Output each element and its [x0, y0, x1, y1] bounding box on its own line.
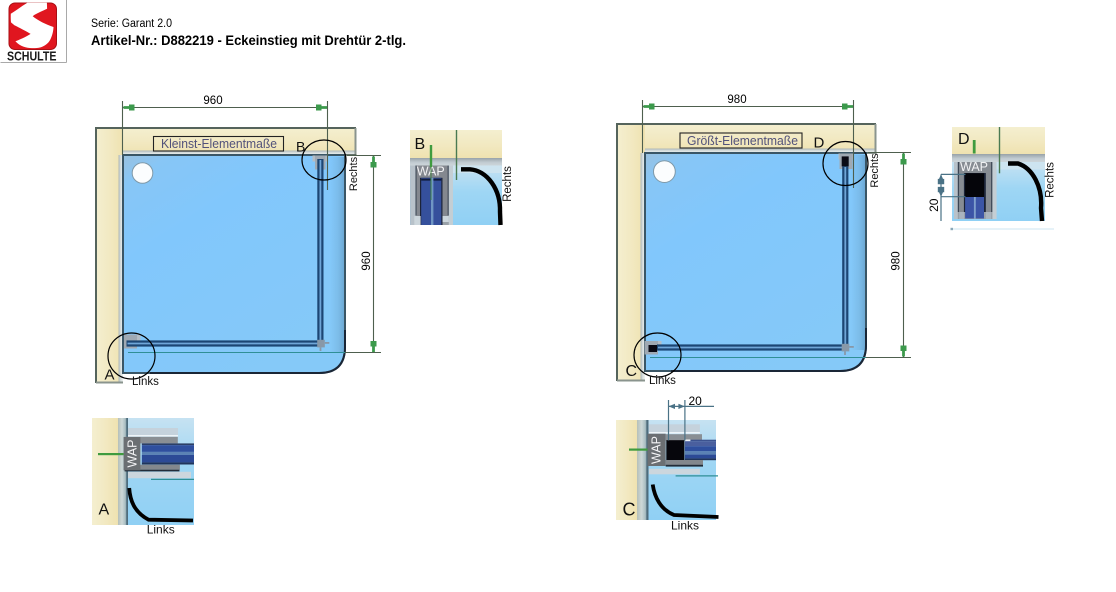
svg-text:Kleinst-Elementmaße: Kleinst-Elementmaße: [161, 137, 277, 151]
svg-text:Serie: Garant 2.0: Serie: Garant 2.0: [91, 18, 172, 30]
svg-text:980: 980: [891, 251, 903, 270]
svg-text:Rechts: Rechts: [502, 166, 514, 202]
svg-text:Links: Links: [649, 375, 676, 387]
svg-text:Links: Links: [132, 376, 159, 388]
svg-text:A: A: [105, 367, 115, 384]
svg-text:20: 20: [927, 198, 941, 212]
svg-text:WAP: WAP: [960, 160, 988, 174]
svg-text:980: 980: [727, 94, 746, 106]
svg-text:960: 960: [361, 251, 373, 270]
svg-text:D: D: [814, 135, 825, 152]
svg-text:Rechts: Rechts: [348, 156, 360, 191]
svg-text:Rechts: Rechts: [869, 153, 881, 188]
svg-text:Größt-Elementmaße: Größt-Elementmaße: [687, 134, 798, 148]
svg-text:B: B: [415, 136, 426, 153]
svg-text:WAP: WAP: [126, 439, 140, 467]
svg-text:A: A: [99, 502, 110, 519]
svg-text:C: C: [623, 500, 636, 520]
svg-text:960: 960: [203, 95, 222, 107]
svg-text:C: C: [626, 363, 638, 380]
svg-text:Links: Links: [671, 519, 699, 533]
svg-text:Links: Links: [147, 523, 175, 537]
svg-text:Rechts: Rechts: [1045, 162, 1057, 198]
svg-text:SCHULTE: SCHULTE: [7, 50, 57, 64]
svg-text:20: 20: [689, 394, 703, 408]
svg-text:D: D: [958, 131, 970, 148]
svg-text:WAP: WAP: [650, 436, 664, 464]
svg-text:Artikel-Nr.: D882219 - Eckeins: Artikel-Nr.: D882219 - Eckeinstieg mit D…: [91, 33, 406, 48]
